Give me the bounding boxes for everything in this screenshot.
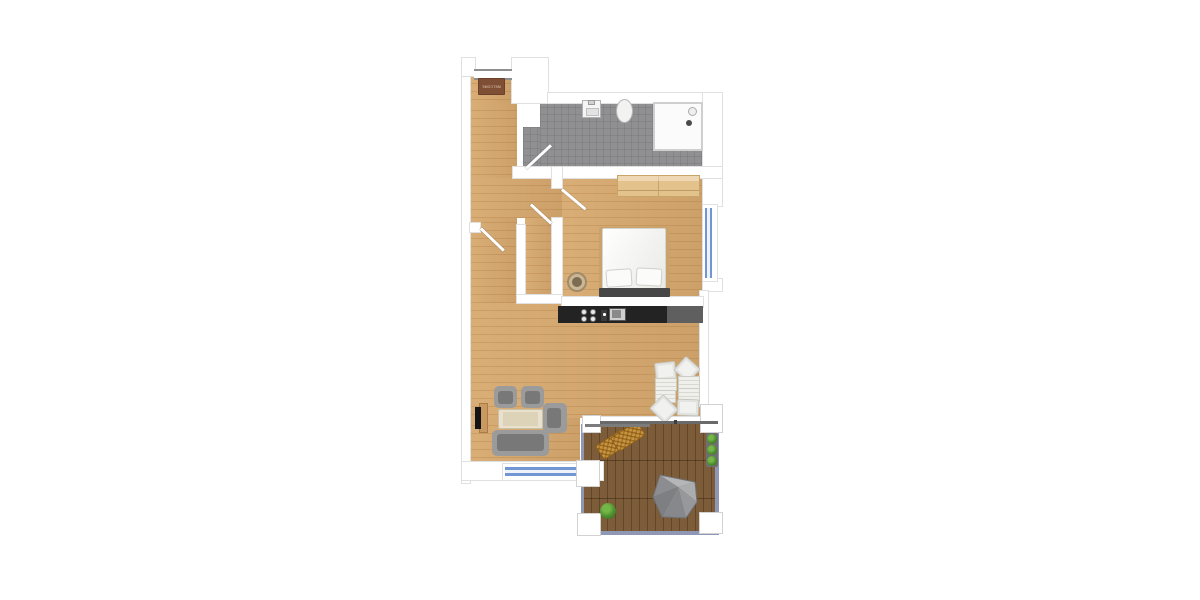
armchair xyxy=(521,386,544,408)
kitchen-faucet-dot xyxy=(603,313,606,316)
tv xyxy=(475,407,481,429)
planter-plant xyxy=(707,434,717,444)
kitchen-counter-right xyxy=(667,306,703,323)
wall-segment xyxy=(512,58,548,103)
armchair xyxy=(494,386,517,408)
shower-head xyxy=(686,120,692,126)
doormat-label: WELCOME xyxy=(482,85,501,89)
terrace-post xyxy=(577,461,599,486)
terrace-post xyxy=(578,514,600,535)
wall-closet-bottom xyxy=(517,295,562,303)
doormat: WELCOME xyxy=(478,78,505,95)
kitchen-sink-basin xyxy=(612,310,621,318)
basket-inner xyxy=(572,277,582,287)
planter-plant xyxy=(707,445,717,455)
sink-faucet xyxy=(588,100,595,105)
toilet xyxy=(616,99,633,123)
bedroom-window xyxy=(705,208,712,278)
wall-closet-left xyxy=(517,225,525,303)
cooktop-burner xyxy=(581,309,587,315)
floor-plan-canvas: WELCOME xyxy=(0,0,1200,600)
bed-pillow xyxy=(605,268,632,288)
sliding-door-panel xyxy=(585,424,650,427)
wall-closet-right xyxy=(552,218,562,303)
terrace-post xyxy=(700,513,722,533)
terrace-bush xyxy=(600,503,616,519)
dining-chair xyxy=(677,399,700,417)
coffee-table-top xyxy=(503,412,538,426)
corridor-floor xyxy=(470,178,562,218)
bed-pillow xyxy=(636,267,663,286)
armchair xyxy=(543,403,567,433)
wall-segment xyxy=(552,167,562,188)
cooktop-burner xyxy=(590,309,596,315)
wall-left-exterior xyxy=(462,58,470,483)
shower-drain xyxy=(688,107,697,116)
living-room-window xyxy=(505,467,576,476)
terrace-post xyxy=(701,405,722,432)
sliding-door-handle xyxy=(674,420,677,424)
wall-hall-stub xyxy=(470,223,480,232)
wardrobe xyxy=(617,175,700,197)
cooktop-burner xyxy=(581,316,587,322)
terrace-railing-bottom xyxy=(581,531,719,535)
cooktop-burner xyxy=(590,316,596,322)
wall-right-exterior xyxy=(703,93,722,206)
planter-plant xyxy=(707,456,717,466)
sink-basin xyxy=(586,108,599,116)
bed-headboard xyxy=(599,288,670,297)
kitchen-faucet xyxy=(601,310,607,321)
parasol xyxy=(650,467,700,520)
sofa xyxy=(492,430,549,456)
closet-floor xyxy=(525,218,552,295)
